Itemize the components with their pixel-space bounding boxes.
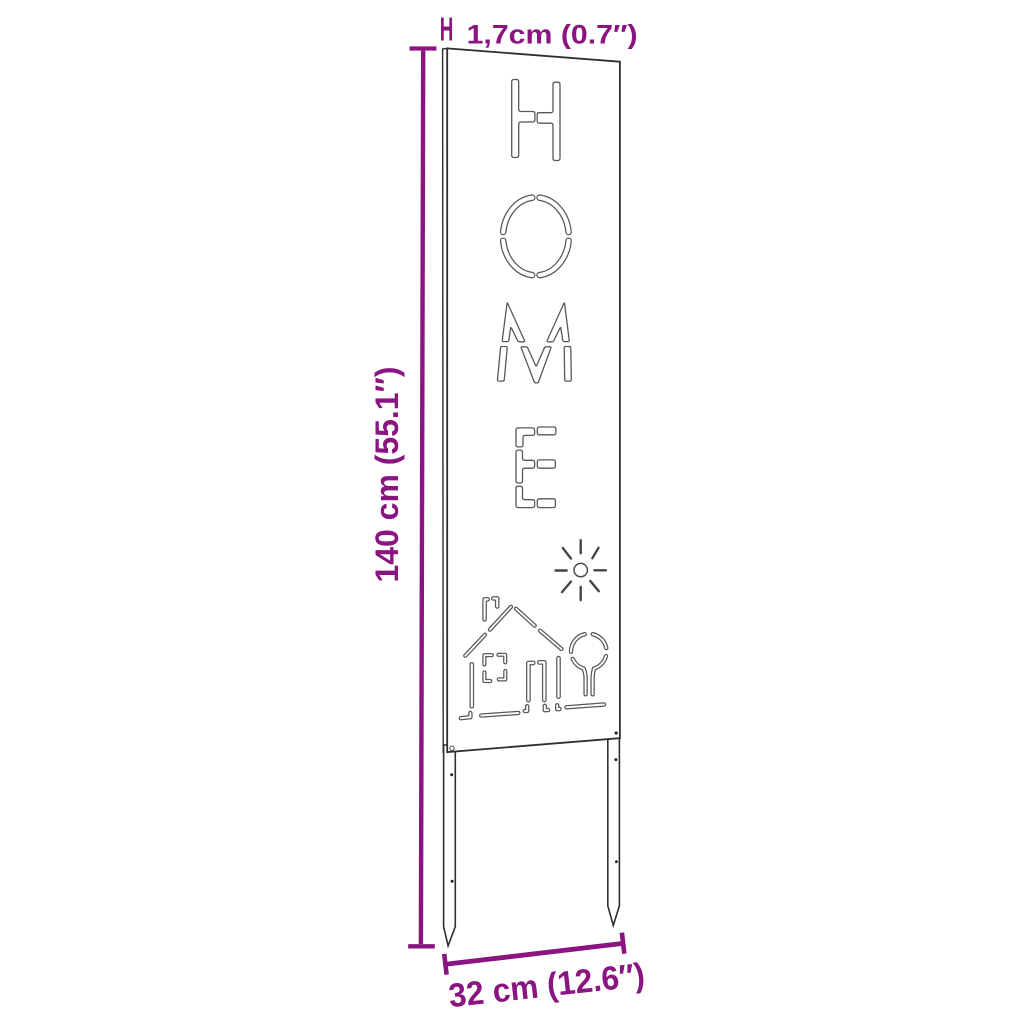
svg-text:140 cm (55.1″): 140 cm (55.1″)	[369, 367, 405, 583]
svg-text:H: H	[440, 12, 454, 49]
svg-text:1,7cm (0.7″): 1,7cm (0.7″)	[467, 20, 638, 50]
